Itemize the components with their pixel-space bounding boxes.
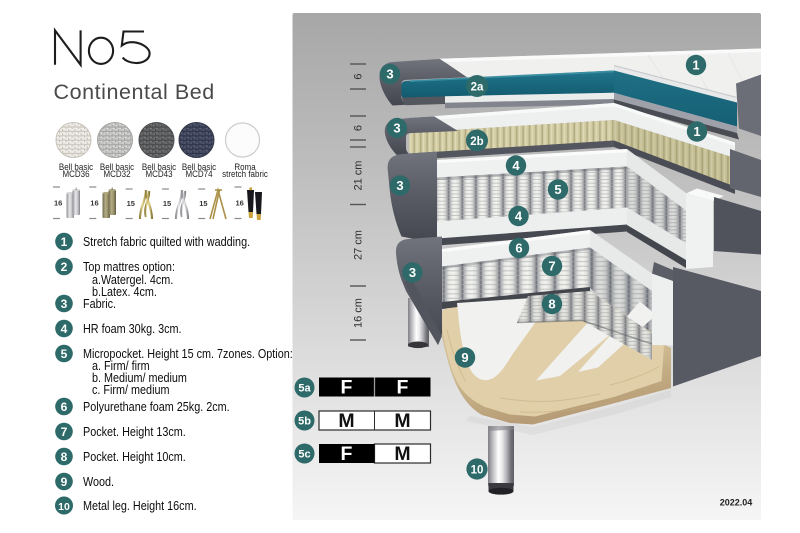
svg-text:8: 8 bbox=[548, 297, 555, 312]
svg-text:15: 15 bbox=[127, 199, 135, 208]
svg-text:16: 16 bbox=[54, 199, 62, 208]
svg-text:5b: 5b bbox=[298, 416, 311, 428]
svg-text:1: 1 bbox=[693, 124, 700, 139]
svg-text:2b: 2b bbox=[470, 136, 483, 148]
svg-text:16: 16 bbox=[236, 199, 244, 208]
svg-text:4: 4 bbox=[512, 158, 520, 173]
svg-text:M: M bbox=[394, 410, 410, 432]
svg-text:7: 7 bbox=[548, 259, 555, 274]
svg-text:1: 1 bbox=[61, 235, 68, 249]
svg-text:7: 7 bbox=[61, 425, 68, 439]
svg-text:2022.04: 2022.04 bbox=[720, 498, 753, 508]
svg-text:5: 5 bbox=[61, 347, 68, 361]
svg-text:15: 15 bbox=[163, 199, 171, 208]
svg-text:6: 6 bbox=[353, 125, 365, 131]
svg-text:5: 5 bbox=[554, 182, 561, 197]
svg-text:F: F bbox=[341, 377, 353, 399]
svg-text:F: F bbox=[341, 443, 353, 465]
svg-text:6: 6 bbox=[353, 73, 365, 79]
svg-text:5c: 5c bbox=[298, 449, 310, 461]
svg-text:2: 2 bbox=[61, 260, 68, 274]
svg-text:3: 3 bbox=[396, 178, 403, 193]
svg-text:10: 10 bbox=[58, 501, 70, 513]
svg-text:3: 3 bbox=[409, 265, 416, 280]
svg-text:16: 16 bbox=[90, 199, 98, 208]
svg-text:9: 9 bbox=[61, 475, 68, 489]
svg-text:10: 10 bbox=[471, 464, 484, 476]
svg-text:M: M bbox=[394, 443, 410, 465]
svg-text:3: 3 bbox=[61, 297, 68, 311]
svg-text:F: F bbox=[397, 377, 409, 399]
svg-text:21 cm: 21 cm bbox=[353, 161, 365, 191]
svg-text:27 cm: 27 cm bbox=[353, 230, 365, 260]
svg-text:4: 4 bbox=[515, 209, 523, 224]
svg-text:4: 4 bbox=[61, 322, 68, 336]
svg-text:5a: 5a bbox=[298, 383, 311, 395]
svg-text:3: 3 bbox=[386, 67, 393, 82]
svg-text:16 cm: 16 cm bbox=[353, 298, 365, 328]
svg-text:9: 9 bbox=[461, 350, 468, 365]
svg-text:8: 8 bbox=[61, 450, 68, 464]
svg-text:1: 1 bbox=[692, 58, 699, 73]
svg-text:6: 6 bbox=[515, 241, 522, 256]
svg-text:6: 6 bbox=[61, 400, 68, 414]
svg-text:15: 15 bbox=[199, 199, 207, 208]
svg-text:M: M bbox=[338, 410, 354, 432]
svg-text:2a: 2a bbox=[471, 81, 484, 93]
svg-text:3: 3 bbox=[393, 121, 400, 136]
